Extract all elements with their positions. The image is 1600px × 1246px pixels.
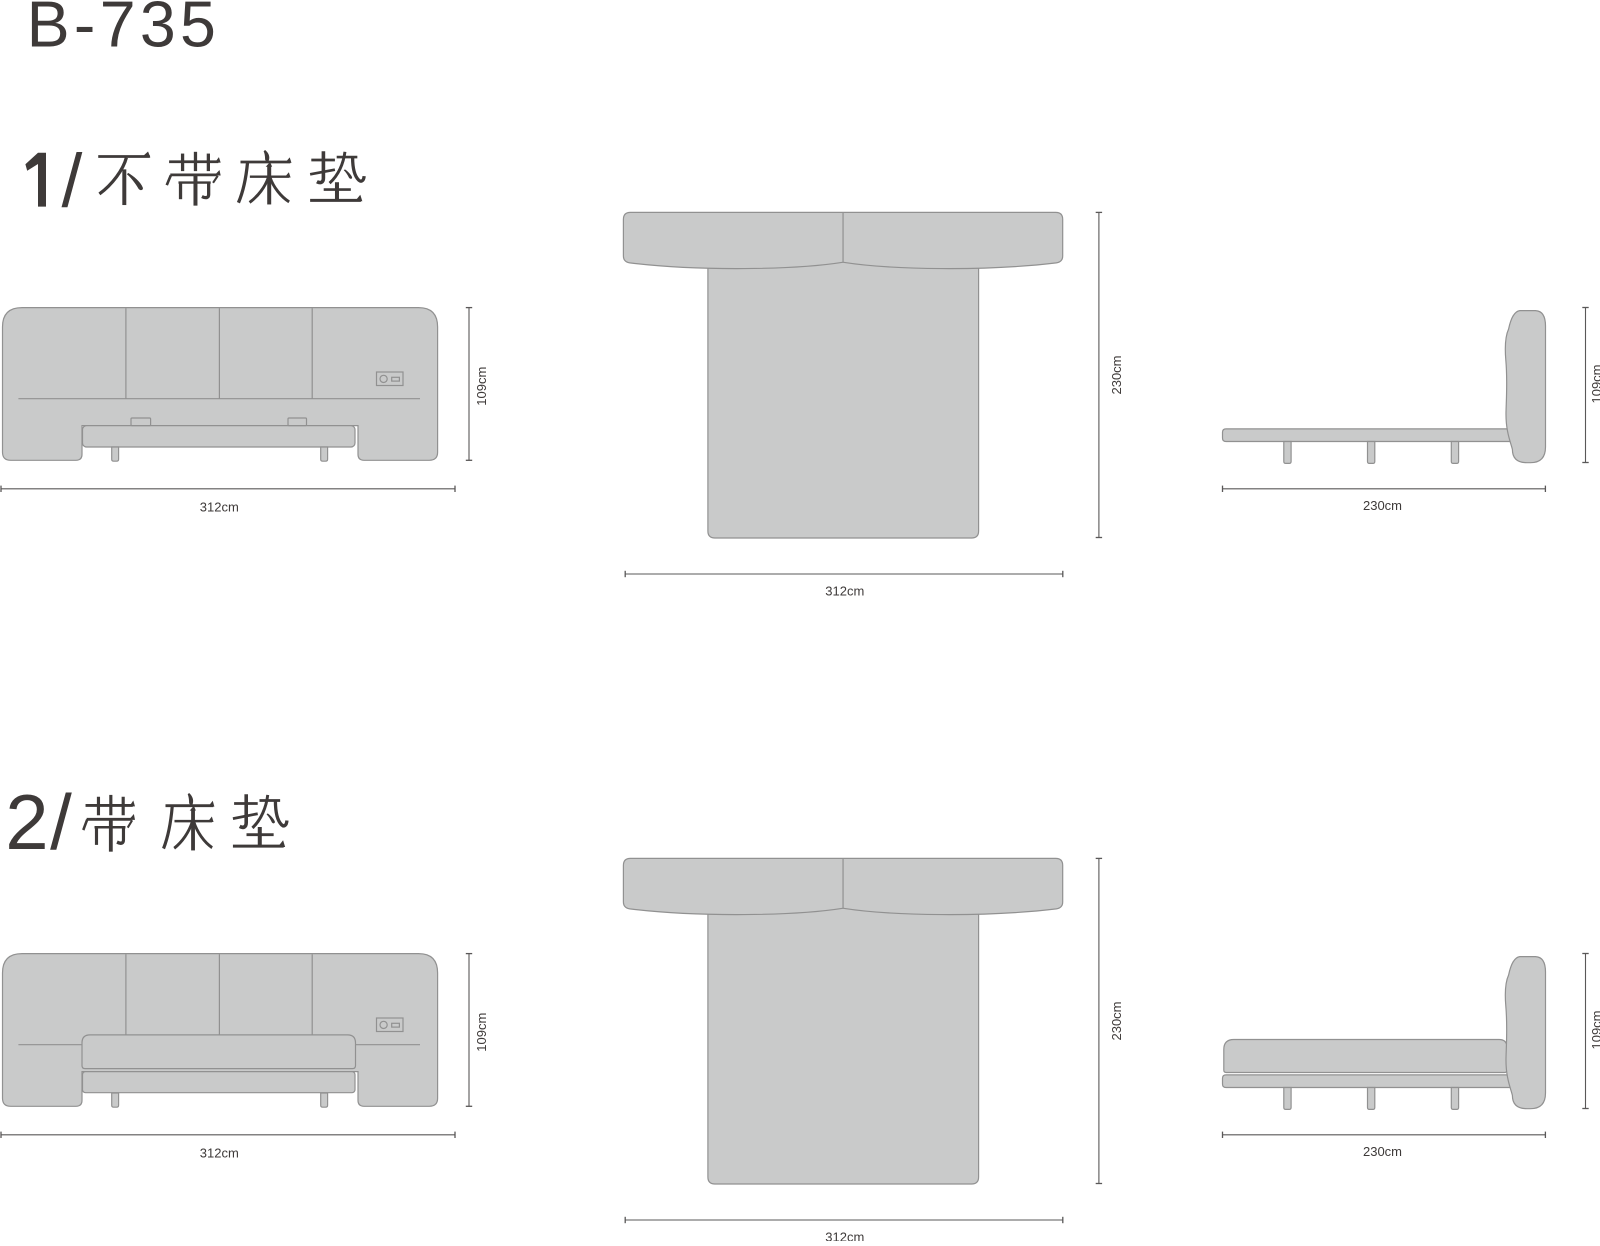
svg-text:B-735: B-735: [27, 0, 221, 61]
svg-text:230cm: 230cm: [1363, 1144, 1402, 1159]
svg-text:230cm: 230cm: [1363, 498, 1402, 513]
svg-text:109cm: 109cm: [1589, 1010, 1600, 1049]
svg-text:109cm: 109cm: [1589, 364, 1600, 403]
svg-text:/: /: [62, 139, 83, 223]
svg-text:312cm: 312cm: [200, 500, 239, 515]
svg-text:312cm: 312cm: [200, 1146, 239, 1161]
svg-text:230cm: 230cm: [1109, 355, 1124, 394]
svg-text:312cm: 312cm: [825, 583, 864, 598]
svg-text:230cm: 230cm: [1109, 1001, 1124, 1040]
svg-text:2/: 2/: [5, 778, 73, 866]
svg-text:109cm: 109cm: [474, 367, 489, 406]
svg-text:109cm: 109cm: [474, 1013, 489, 1052]
svg-text:312cm: 312cm: [825, 1229, 864, 1241]
